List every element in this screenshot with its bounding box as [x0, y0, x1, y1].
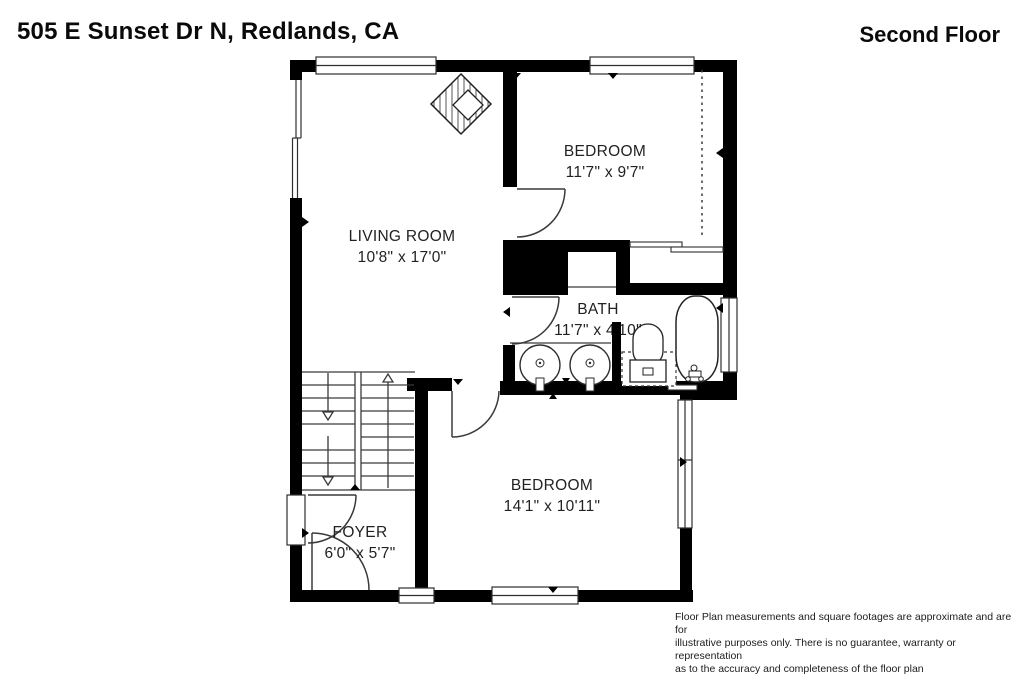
window-bath-right [721, 298, 737, 372]
stairs [302, 372, 415, 490]
room-name: BATH [488, 299, 708, 320]
room-label-bedroom-top: BEDROOM 11'7" x 9'7" [495, 141, 715, 183]
room-dimensions: 14'1" x 10'11" [442, 496, 662, 517]
bath-partial-wall [612, 322, 621, 390]
room-dimensions: 6'0" x 5'7" [250, 543, 470, 564]
stairs-up-arrow [383, 374, 393, 488]
fireplace-icon [431, 72, 491, 136]
disclaimer-line: as to the accuracy and completeness of t… [675, 663, 1020, 676]
disclaimer-text: Floor Plan measurements and square foota… [675, 611, 1020, 676]
room-label-bedroom-bottom: BEDROOM 14'1" x 10'11" [442, 475, 662, 517]
window-bedroom-top [590, 57, 694, 74]
room-label-foyer: FOYER 6'0" x 5'7" [250, 522, 470, 564]
room-name: BEDROOM [495, 141, 715, 162]
window-living-left [289, 80, 303, 198]
disclaimer-line: Floor Plan measurements and square foota… [675, 611, 1020, 637]
floorplan-drawing [0, 0, 1024, 683]
stairs-down-arrow-1 [323, 373, 333, 420]
window-living-top [316, 57, 436, 74]
room-dimensions: 10'8" x 17'0" [292, 247, 512, 268]
room-label-bath: BATH 11'7" x 4'10" [488, 299, 708, 341]
door-bedroom-bottom [452, 391, 499, 437]
room-name: FOYER [250, 522, 470, 543]
room-label-living-room: LIVING ROOM 10'8" x 17'0" [292, 226, 512, 268]
window-bedroom-bottom [492, 587, 578, 604]
floorplan-page: 505 E Sunset Dr N, Redlands, CA Second F… [0, 0, 1024, 683]
room-dimensions: 11'7" x 9'7" [495, 162, 715, 183]
sliding-door-closet [630, 242, 723, 252]
room-name: LIVING ROOM [292, 226, 512, 247]
room-dimensions: 11'7" x 4'10" [488, 320, 708, 341]
disclaimer-line: illustrative purposes only. There is no … [675, 637, 1020, 663]
window-foyer-bottom [399, 588, 434, 603]
bath-nook [568, 252, 616, 287]
door-bedroom-top [517, 189, 565, 237]
stairs-down-arrow-2 [323, 436, 333, 485]
room-name: BEDROOM [442, 475, 662, 496]
